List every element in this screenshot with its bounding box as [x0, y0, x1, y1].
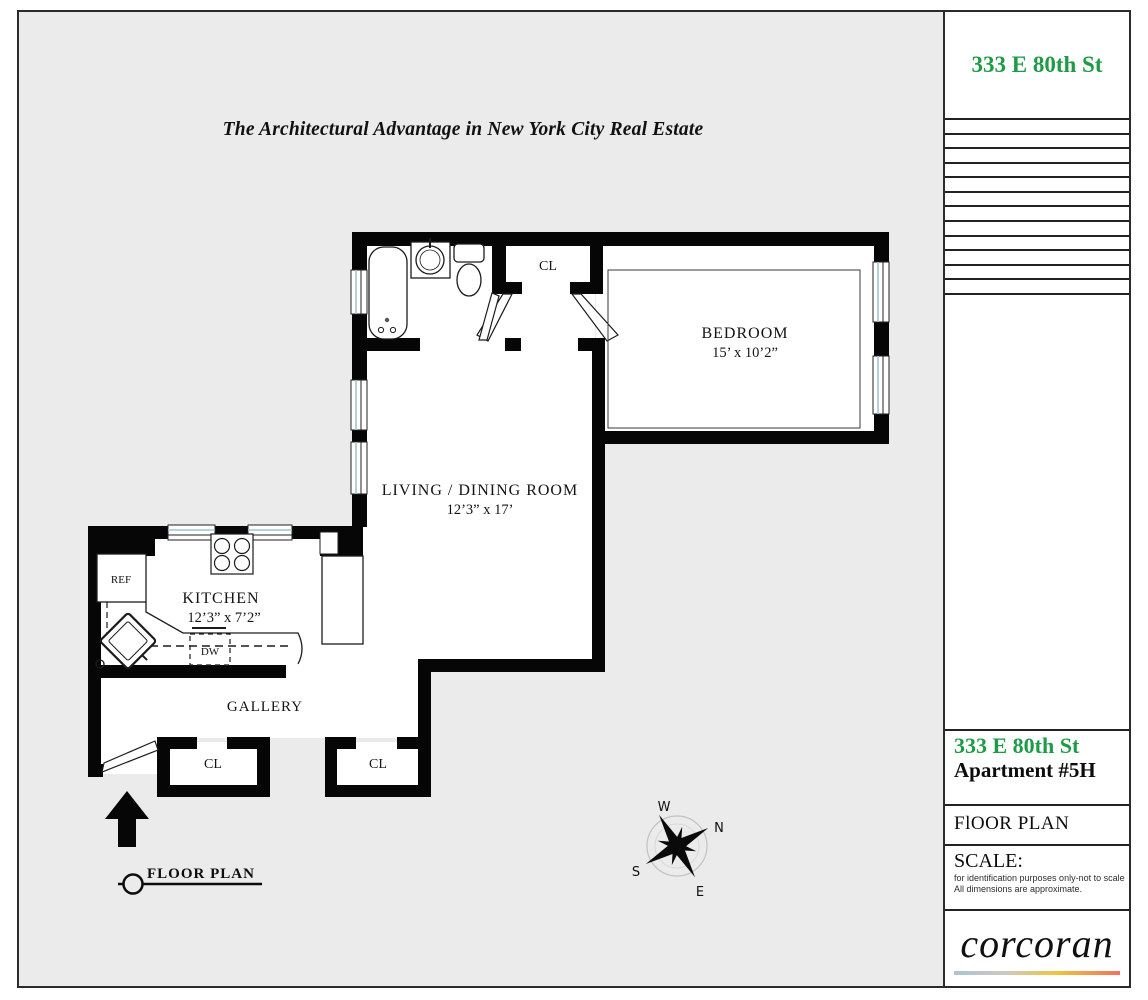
refrigerator-label: REF [111, 574, 131, 586]
ruled-line [945, 164, 1129, 179]
compass-south-label: S [632, 865, 640, 880]
kitchen-dims: 12’3” x 7’2” [187, 610, 260, 626]
scale-block: SCALE: for identification purposes only-… [945, 846, 1129, 911]
scale-note-2: All dimensions are approximate. [954, 884, 1129, 895]
ruled-line [945, 266, 1129, 281]
ruled-line [945, 120, 1129, 135]
closet-label: CL [204, 757, 222, 772]
ruled-line [945, 280, 1129, 295]
window-icon [351, 270, 367, 314]
ruled-line [945, 135, 1129, 150]
entry-arrow-icon [105, 791, 149, 847]
gallery-label: GALLERY [227, 699, 303, 715]
sidebar-top-address-box: 333 E 80th St [945, 12, 1129, 120]
address-line: 333 E 80th St [954, 734, 1129, 759]
bedroom-dims: 15’ x 10’2” [712, 345, 778, 361]
window-icon [248, 525, 292, 540]
bathtub-icon [369, 247, 407, 339]
scale-label: SCALE: [954, 850, 1129, 873]
dishwasher-label: DW [201, 646, 220, 658]
empty-notes-box [945, 295, 1129, 731]
building-address: 333 E 80th St [972, 52, 1103, 78]
living-dining-dims: 12’3” x 17’ [447, 502, 514, 518]
brand-block: corcoran [945, 911, 1129, 986]
compass-north-label: N [714, 821, 724, 836]
living-dining-label: LIVING / DINING ROOM [382, 482, 578, 499]
kitchen-niche [320, 532, 338, 554]
bedroom-label: BEDROOM [701, 325, 788, 342]
kitchen-label: KITCHEN [182, 590, 259, 607]
corcoran-logo: corcoran [960, 924, 1113, 964]
brand-gradient-bar [954, 971, 1120, 975]
ruled-line [945, 222, 1129, 237]
window-icon [351, 442, 367, 494]
compass-rose-icon: N E S W [632, 800, 724, 900]
stove-icon [211, 534, 253, 574]
page-title: The Architectural Advantage in New York … [0, 119, 926, 141]
window-icon [351, 380, 367, 430]
closet-label: CL [539, 259, 557, 274]
scale-note-1: for identification purposes only-not to … [954, 873, 1129, 884]
floor-plan-legend: FLOOR PLAN [118, 866, 262, 894]
window-icon [873, 356, 889, 414]
ruled-line [945, 193, 1129, 208]
closet-label: CL [369, 757, 387, 772]
ruled-line [945, 178, 1129, 193]
ruled-line [945, 251, 1129, 266]
bath-sink-icon [411, 238, 450, 278]
legend-label: FLOOR PLAN [147, 866, 255, 882]
ruled-lines-section [945, 120, 1129, 295]
compass-east-label: E [696, 885, 704, 900]
apartment-line: Apartment #5H [954, 759, 1129, 783]
ruled-line [945, 237, 1129, 252]
ruled-line [945, 149, 1129, 164]
legend-circle-icon [124, 875, 143, 894]
sidebar-floorplan-label: FlOOR PLAN [945, 806, 1129, 846]
window-icon [168, 525, 215, 540]
compass-west-label: W [658, 800, 671, 815]
window-icon [873, 262, 889, 322]
title-block-sidebar: 333 E 80th St 333 E 80th St Apartment #5… [943, 12, 1129, 986]
ruled-line [945, 207, 1129, 222]
kitchen-cabinet [322, 556, 363, 644]
sidebar-address-block: 333 E 80th St Apartment #5H [945, 731, 1129, 806]
